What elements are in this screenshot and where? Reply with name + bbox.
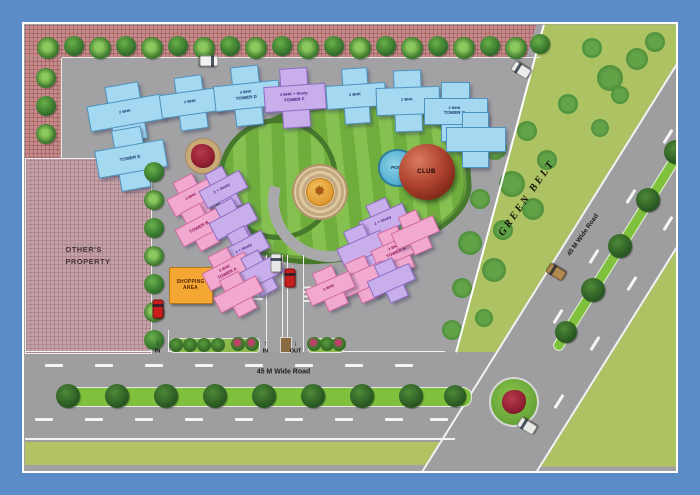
tree-icon bbox=[144, 162, 164, 182]
lane-dash bbox=[185, 418, 203, 421]
tree-icon bbox=[428, 36, 448, 56]
tree-icon bbox=[183, 338, 197, 352]
tree-icon bbox=[169, 338, 183, 352]
tree-icon bbox=[211, 338, 225, 352]
mandala-icon: ✹ bbox=[306, 178, 334, 206]
tree-icon bbox=[581, 278, 605, 302]
tree-icon bbox=[245, 337, 259, 351]
tree-icon bbox=[144, 218, 164, 238]
tree-icon bbox=[144, 274, 164, 294]
car bbox=[510, 60, 532, 79]
tower-label: 2 BHK bbox=[183, 98, 196, 104]
tree-icon bbox=[245, 37, 267, 59]
tree-icon bbox=[154, 384, 178, 408]
tree-icon bbox=[231, 337, 245, 351]
club-label: CLUB bbox=[417, 169, 436, 175]
tower bbox=[446, 112, 504, 166]
lane-dash bbox=[395, 364, 413, 367]
tree-icon bbox=[608, 234, 632, 258]
bush bbox=[558, 94, 578, 114]
red-flowers bbox=[191, 144, 215, 168]
car bbox=[152, 299, 163, 318]
bush bbox=[452, 278, 472, 298]
tower: TOWER E bbox=[91, 122, 168, 193]
tree-icon bbox=[350, 384, 374, 408]
tree-icon bbox=[105, 384, 129, 408]
tree-icon bbox=[144, 330, 164, 350]
tree-icon bbox=[505, 37, 527, 59]
tree-icon bbox=[453, 37, 475, 59]
master-plan-map: ✹ POOL CLUB OTHER'S PROPERTY SHOPPING AR… bbox=[22, 22, 678, 473]
site-plan-page: { "colors": { "frame_blue": "#5b8cc8", "… bbox=[0, 0, 700, 495]
tree-icon bbox=[555, 321, 577, 343]
lane-dash bbox=[35, 418, 53, 421]
lane-dash bbox=[135, 418, 153, 421]
lane-dash bbox=[385, 418, 403, 421]
main-in-gate-label: ↑ IN bbox=[263, 340, 269, 355]
tower: 3 BHK + StudyTOWER F bbox=[262, 65, 326, 127]
tree-icon bbox=[36, 96, 56, 116]
tree-icon bbox=[36, 68, 56, 88]
bush bbox=[645, 32, 665, 52]
tree-icon bbox=[144, 190, 164, 210]
lane-dash bbox=[195, 364, 213, 367]
tower-wing bbox=[446, 127, 506, 152]
central-plaza: ✹ bbox=[292, 164, 348, 220]
tree-icon bbox=[324, 36, 344, 56]
lane-dash bbox=[430, 418, 448, 421]
tree-icon bbox=[307, 337, 321, 351]
tower-label: 2 BHK bbox=[400, 97, 412, 102]
curb-line bbox=[61, 58, 63, 158]
tree-icon bbox=[376, 36, 396, 56]
tree-icon bbox=[530, 34, 550, 54]
others-property-label: OTHER'S PROPERTY bbox=[65, 244, 110, 267]
lane-dash bbox=[235, 418, 253, 421]
lane-dash bbox=[285, 418, 303, 421]
tree-icon bbox=[36, 124, 56, 144]
bush bbox=[591, 119, 609, 137]
lane-dash bbox=[85, 418, 103, 421]
lane-dash bbox=[95, 364, 113, 367]
tree-icon bbox=[141, 37, 163, 59]
shopping-label-line2: AREA bbox=[183, 285, 198, 292]
bottom-grass-verge bbox=[25, 442, 445, 465]
bush bbox=[482, 258, 506, 282]
tree-icon bbox=[332, 337, 346, 351]
tree-icon bbox=[37, 37, 59, 59]
lane-dash bbox=[245, 364, 263, 367]
bush bbox=[475, 309, 493, 327]
tree-icon bbox=[272, 36, 292, 56]
roundabout bbox=[489, 377, 539, 427]
bush bbox=[517, 121, 537, 141]
car bbox=[199, 55, 218, 66]
tree-icon bbox=[203, 384, 227, 408]
main-out-gate-label: ↓ OUT bbox=[290, 340, 302, 355]
tree-icon bbox=[168, 36, 188, 56]
car bbox=[270, 253, 281, 272]
tree-icon bbox=[480, 36, 500, 56]
tree-icon bbox=[252, 384, 276, 408]
bush bbox=[582, 38, 602, 58]
lane-dash bbox=[45, 364, 63, 367]
bush bbox=[458, 231, 482, 255]
site-plan-canvas: ✹ POOL CLUB OTHER'S PROPERTY SHOPPING AR… bbox=[22, 22, 678, 473]
tree-icon bbox=[401, 37, 423, 59]
lane-dash bbox=[345, 364, 363, 367]
bottom-road-label: 45 M Wide Road bbox=[257, 368, 311, 375]
roundabout-flowers bbox=[502, 390, 526, 414]
tree-icon bbox=[144, 246, 164, 266]
tower-label: 3 BHK + StudyTOWER F bbox=[279, 91, 307, 103]
tree-icon bbox=[444, 385, 466, 407]
curb-line bbox=[25, 351, 150, 353]
up-arrow-icon: ↑ bbox=[264, 340, 268, 348]
tree-icon bbox=[636, 188, 660, 212]
bush bbox=[626, 48, 648, 70]
car bbox=[284, 268, 295, 287]
tree-icon bbox=[89, 37, 111, 59]
tree-icon bbox=[220, 36, 240, 56]
tree-icon bbox=[297, 37, 319, 59]
lane-dash bbox=[295, 364, 313, 367]
bush bbox=[611, 86, 629, 104]
tree-icon bbox=[349, 37, 371, 59]
up-arrow-icon: ↑ bbox=[156, 340, 160, 348]
tree-icon bbox=[56, 384, 80, 408]
lane-dash bbox=[145, 364, 163, 367]
side-in-gate-label: ↑ IN bbox=[155, 340, 161, 355]
tower-label: 2 BHK bbox=[348, 92, 360, 97]
road-edge-line bbox=[25, 438, 455, 440]
tree-icon bbox=[197, 338, 211, 352]
tree-icon bbox=[116, 36, 136, 56]
tower-label: 3 BHKTOWER D bbox=[234, 89, 256, 101]
bush bbox=[470, 189, 490, 209]
tree-icon bbox=[301, 384, 325, 408]
tree-icon bbox=[399, 384, 423, 408]
lane-dash bbox=[335, 418, 353, 421]
down-arrow-icon: ↓ bbox=[294, 340, 298, 348]
tree-icon bbox=[64, 36, 84, 56]
